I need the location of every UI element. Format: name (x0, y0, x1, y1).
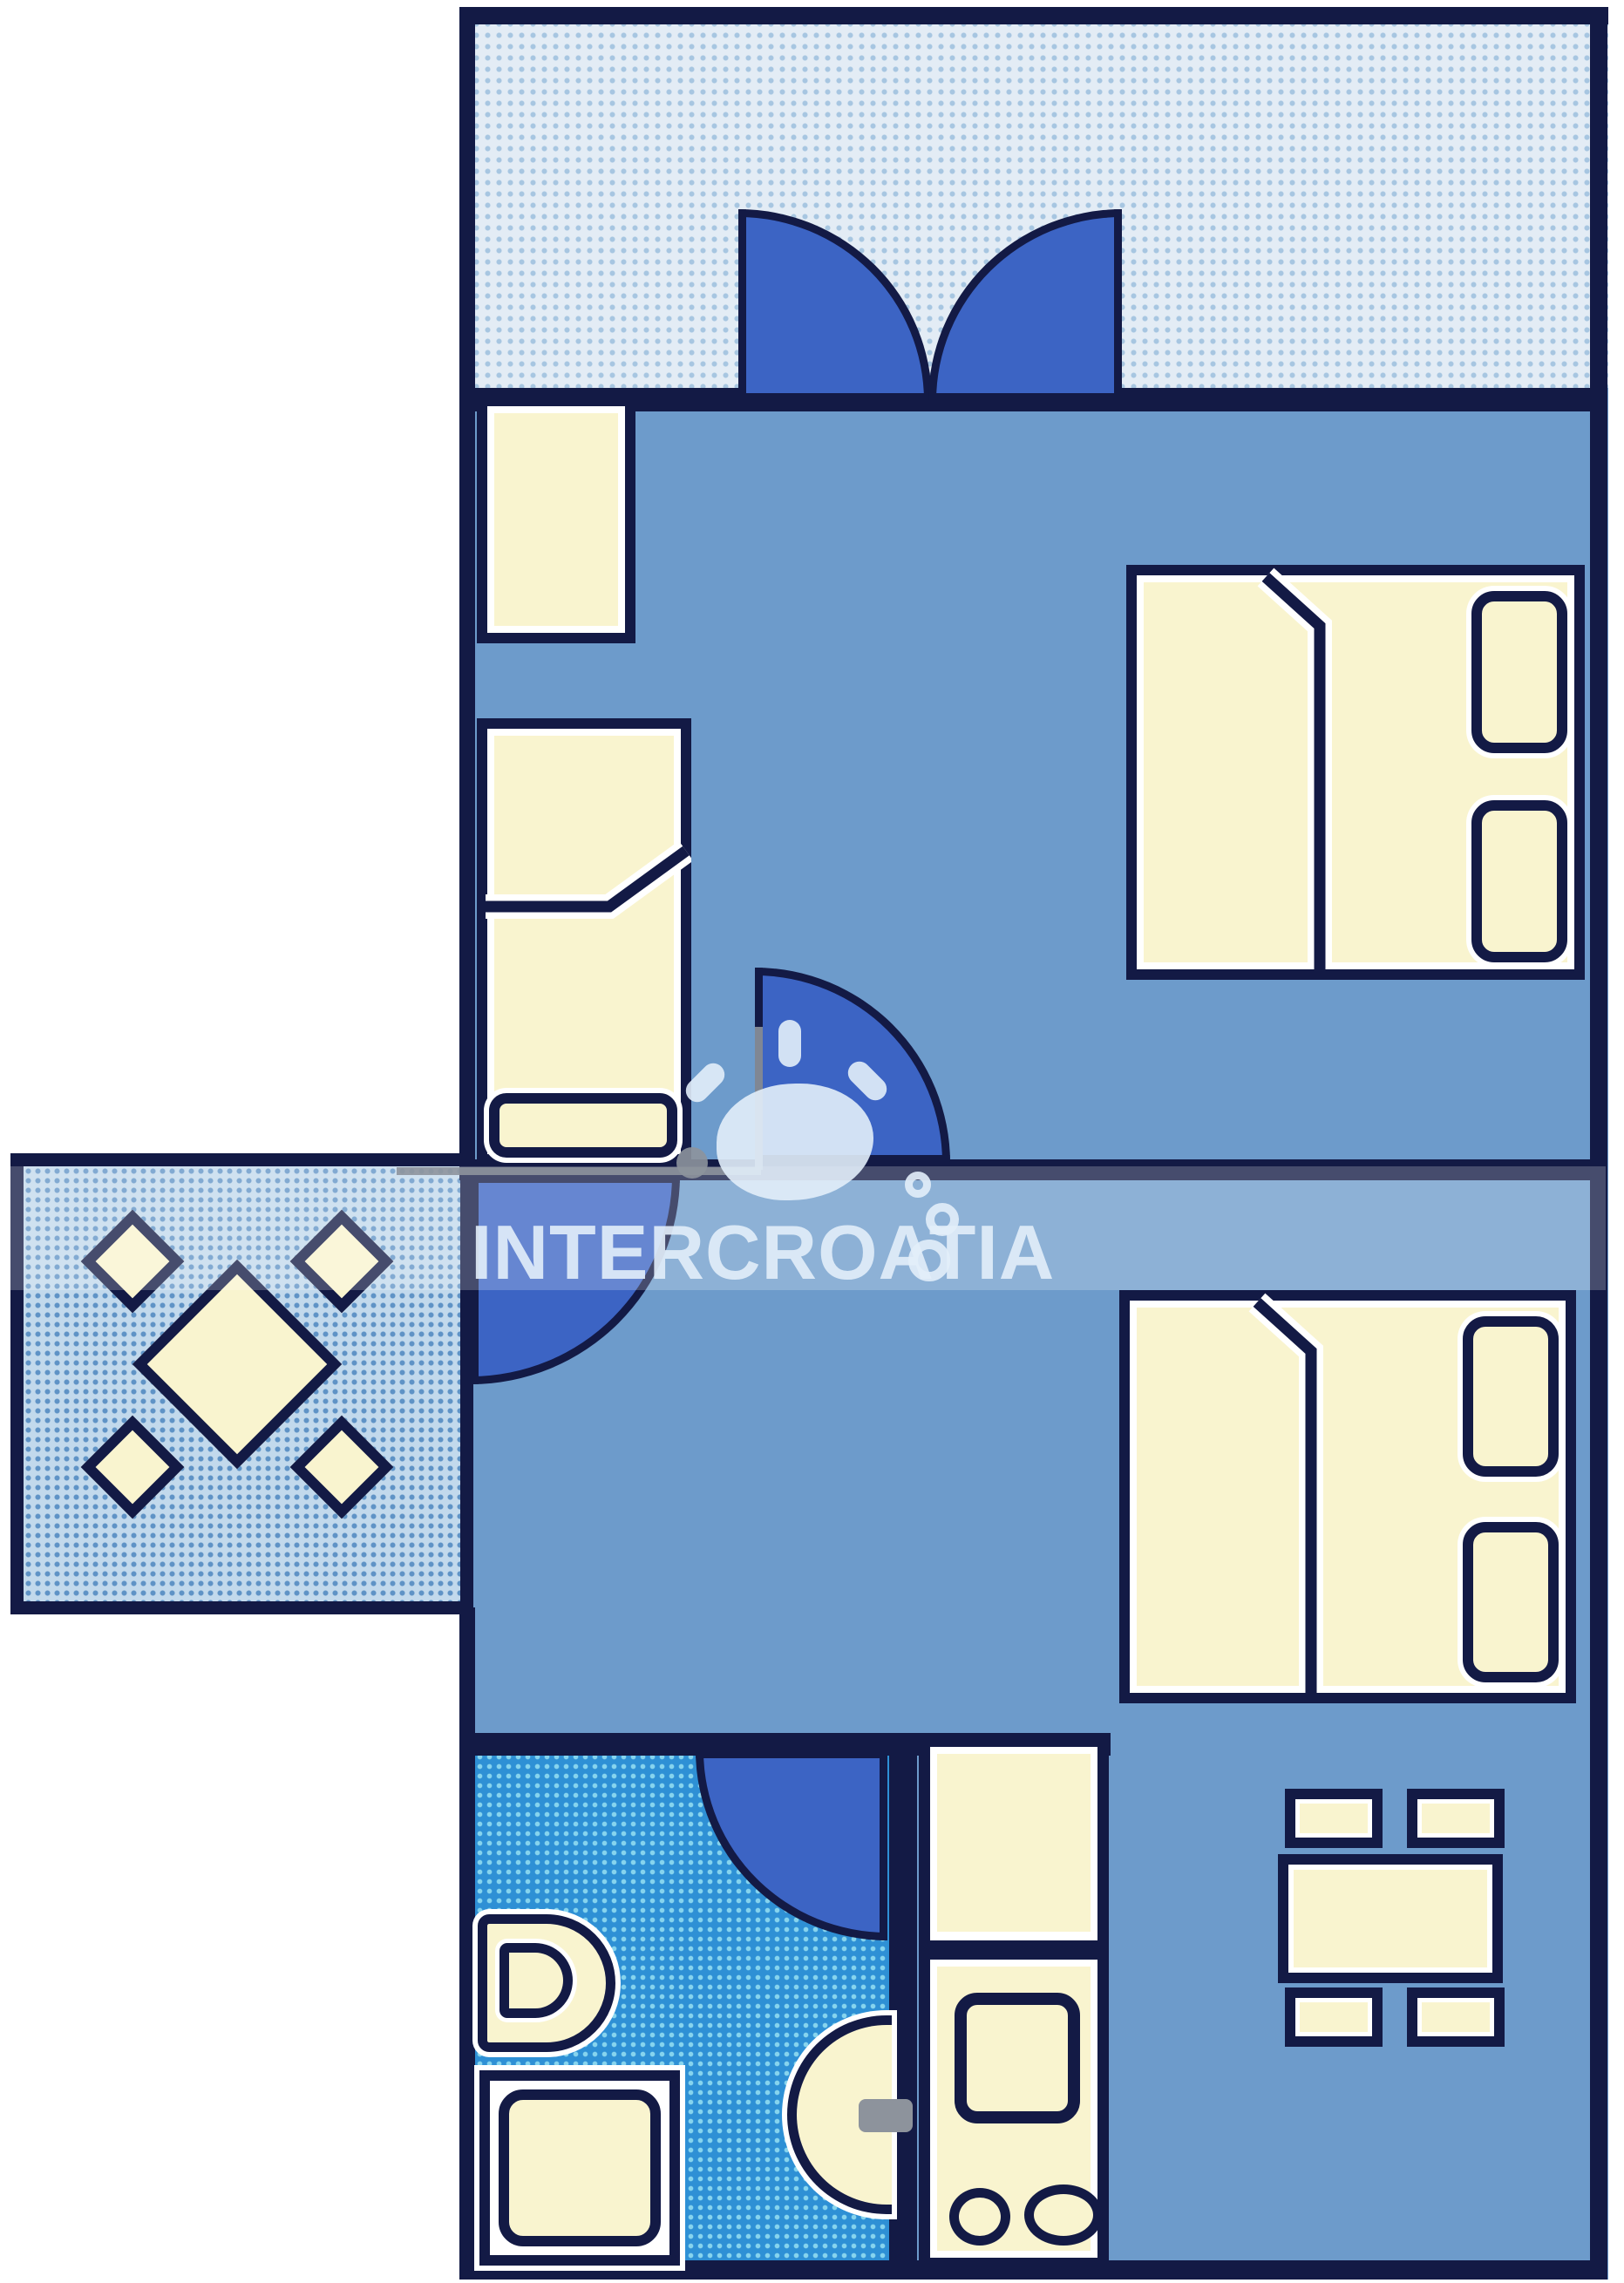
toilet-bowl-icon (499, 1943, 573, 2018)
floor-plan-page: INTERCROATIA (0, 0, 1624, 2283)
outer-wall-top (459, 7, 1608, 24)
double-bed-1-pillow-top (1471, 591, 1567, 753)
wardrobe (477, 396, 635, 643)
oven-door-icon (955, 1993, 1080, 2123)
double-bed-1 (1126, 565, 1585, 980)
double-bed-2 (1119, 1290, 1576, 1703)
double-bed-2-pillow-top (1463, 1316, 1559, 1477)
single-bed-pillow (489, 1093, 677, 1158)
dining-chair-top-right (1407, 1789, 1505, 1848)
burner-left-icon (949, 2188, 1010, 2246)
double-bed-1-pillow-bottom (1471, 800, 1567, 962)
kitchen-divider (930, 1940, 1097, 1960)
bathroom-right-wall (889, 1733, 917, 2280)
dining-chair-bottom-left (1285, 1987, 1383, 2047)
kitchen-counter (937, 1754, 1091, 1932)
toilet-icon (478, 1914, 615, 2052)
shower-tray (499, 2089, 661, 2246)
faucet-icon (859, 2099, 913, 2132)
outer-wall-left-lower (459, 1607, 475, 2280)
outer-wall-left-upper (459, 7, 475, 1166)
burner-right-icon (1024, 2184, 1103, 2246)
double-bed-2-pillow-bottom (1463, 1522, 1559, 1682)
dining-chair-top-left (1285, 1789, 1383, 1848)
kitchen-unit (919, 1736, 1109, 2269)
shower (479, 2070, 680, 2266)
dining-table (1278, 1854, 1503, 1983)
outer-wall-right (1590, 7, 1607, 2280)
single-bed (477, 718, 691, 1165)
dining-chair-bottom-right (1407, 1987, 1505, 2047)
